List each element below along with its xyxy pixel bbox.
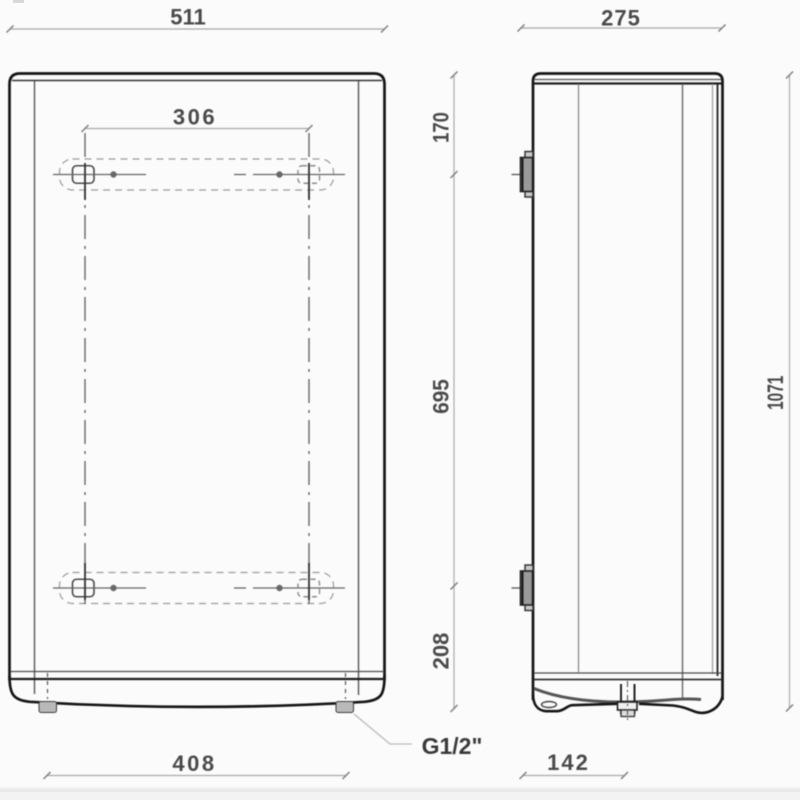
svg-text:306: 306 <box>173 105 217 130</box>
svg-text:142: 142 <box>547 750 590 775</box>
svg-text:408: 408 <box>172 751 216 776</box>
svg-text:695: 695 <box>429 379 454 414</box>
svg-text:1071: 1071 <box>764 375 788 410</box>
svg-text:170: 170 <box>430 112 454 143</box>
svg-text:275: 275 <box>601 6 641 31</box>
svg-text:208: 208 <box>429 633 454 670</box>
svg-text:511: 511 <box>170 5 206 30</box>
svg-text:G1/2": G1/2" <box>422 733 483 759</box>
